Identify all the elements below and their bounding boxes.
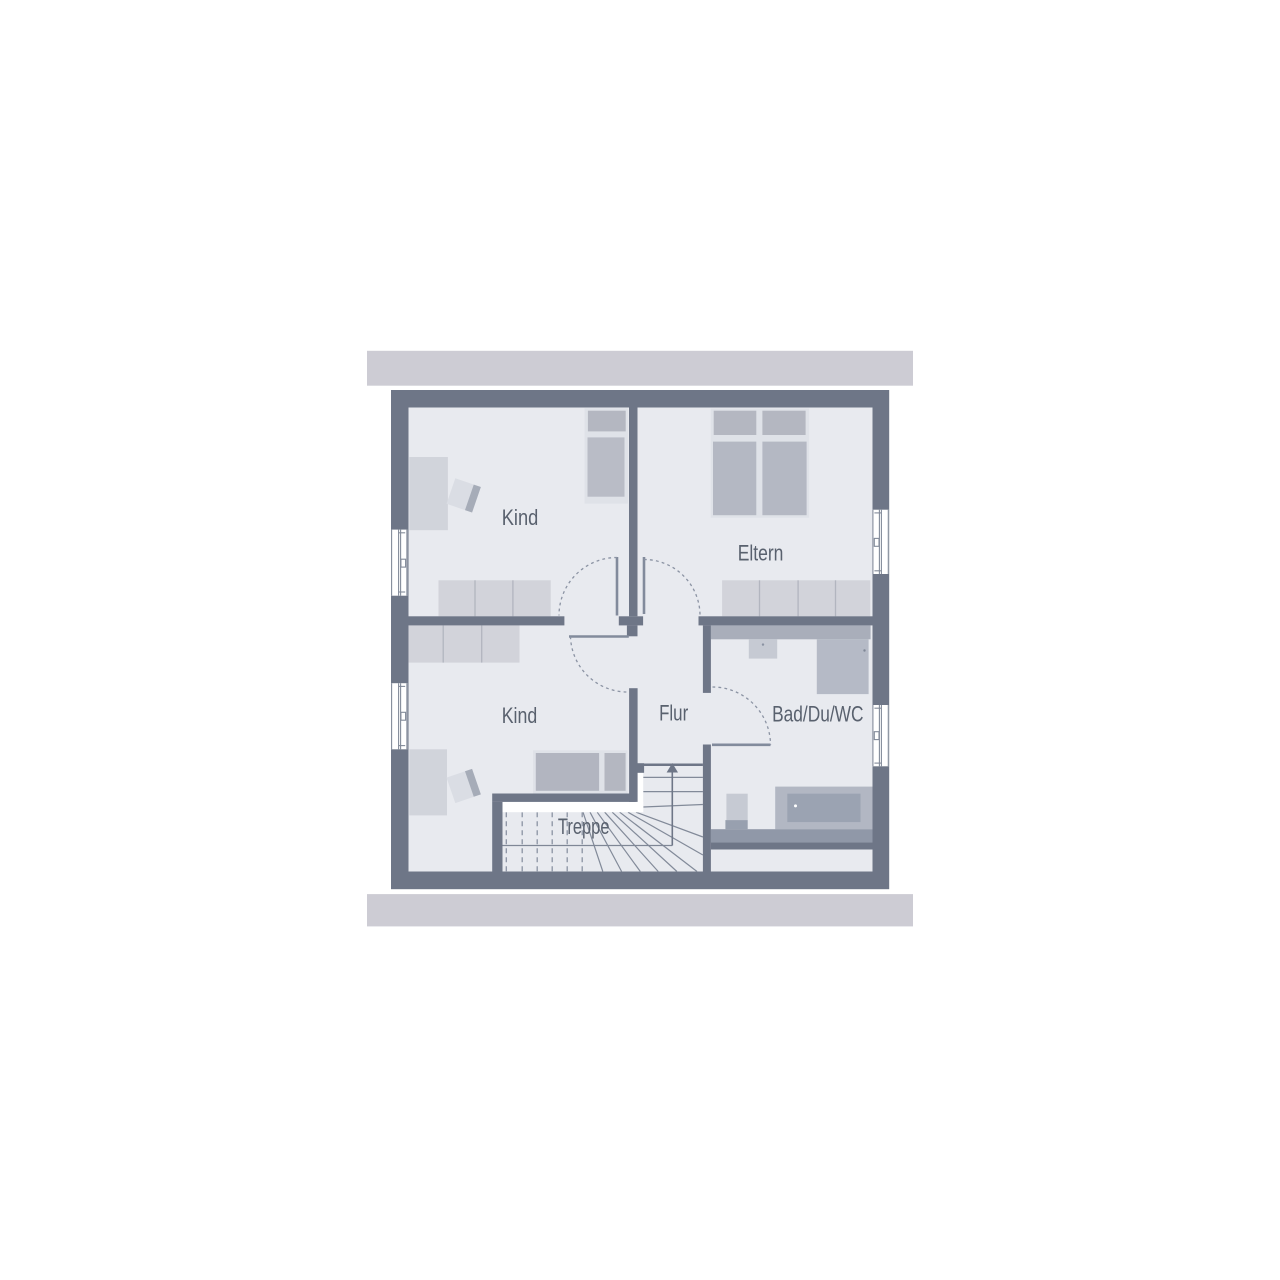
svg-text:Bad/Du/WC: Bad/Du/WC — [772, 701, 863, 726]
svg-text:Eltern: Eltern — [738, 540, 784, 565]
svg-text:Flur: Flur — [659, 701, 688, 726]
svg-text:Treppe: Treppe — [558, 814, 610, 839]
svg-text:Kind: Kind — [502, 505, 539, 530]
svg-text:Kind: Kind — [502, 703, 538, 728]
